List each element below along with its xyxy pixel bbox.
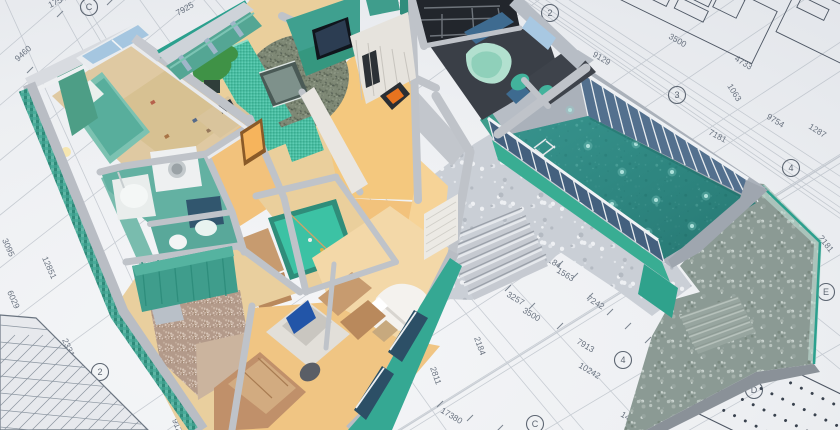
svg-text:3: 3 [674,90,679,100]
svg-text:4: 4 [620,355,625,365]
svg-text:4: 4 [788,163,793,173]
svg-text:E: E [823,287,829,297]
svg-text:2: 2 [547,8,552,18]
svg-text:2: 2 [97,367,102,377]
svg-text:C: C [86,2,93,12]
svg-text:C: C [532,419,539,429]
